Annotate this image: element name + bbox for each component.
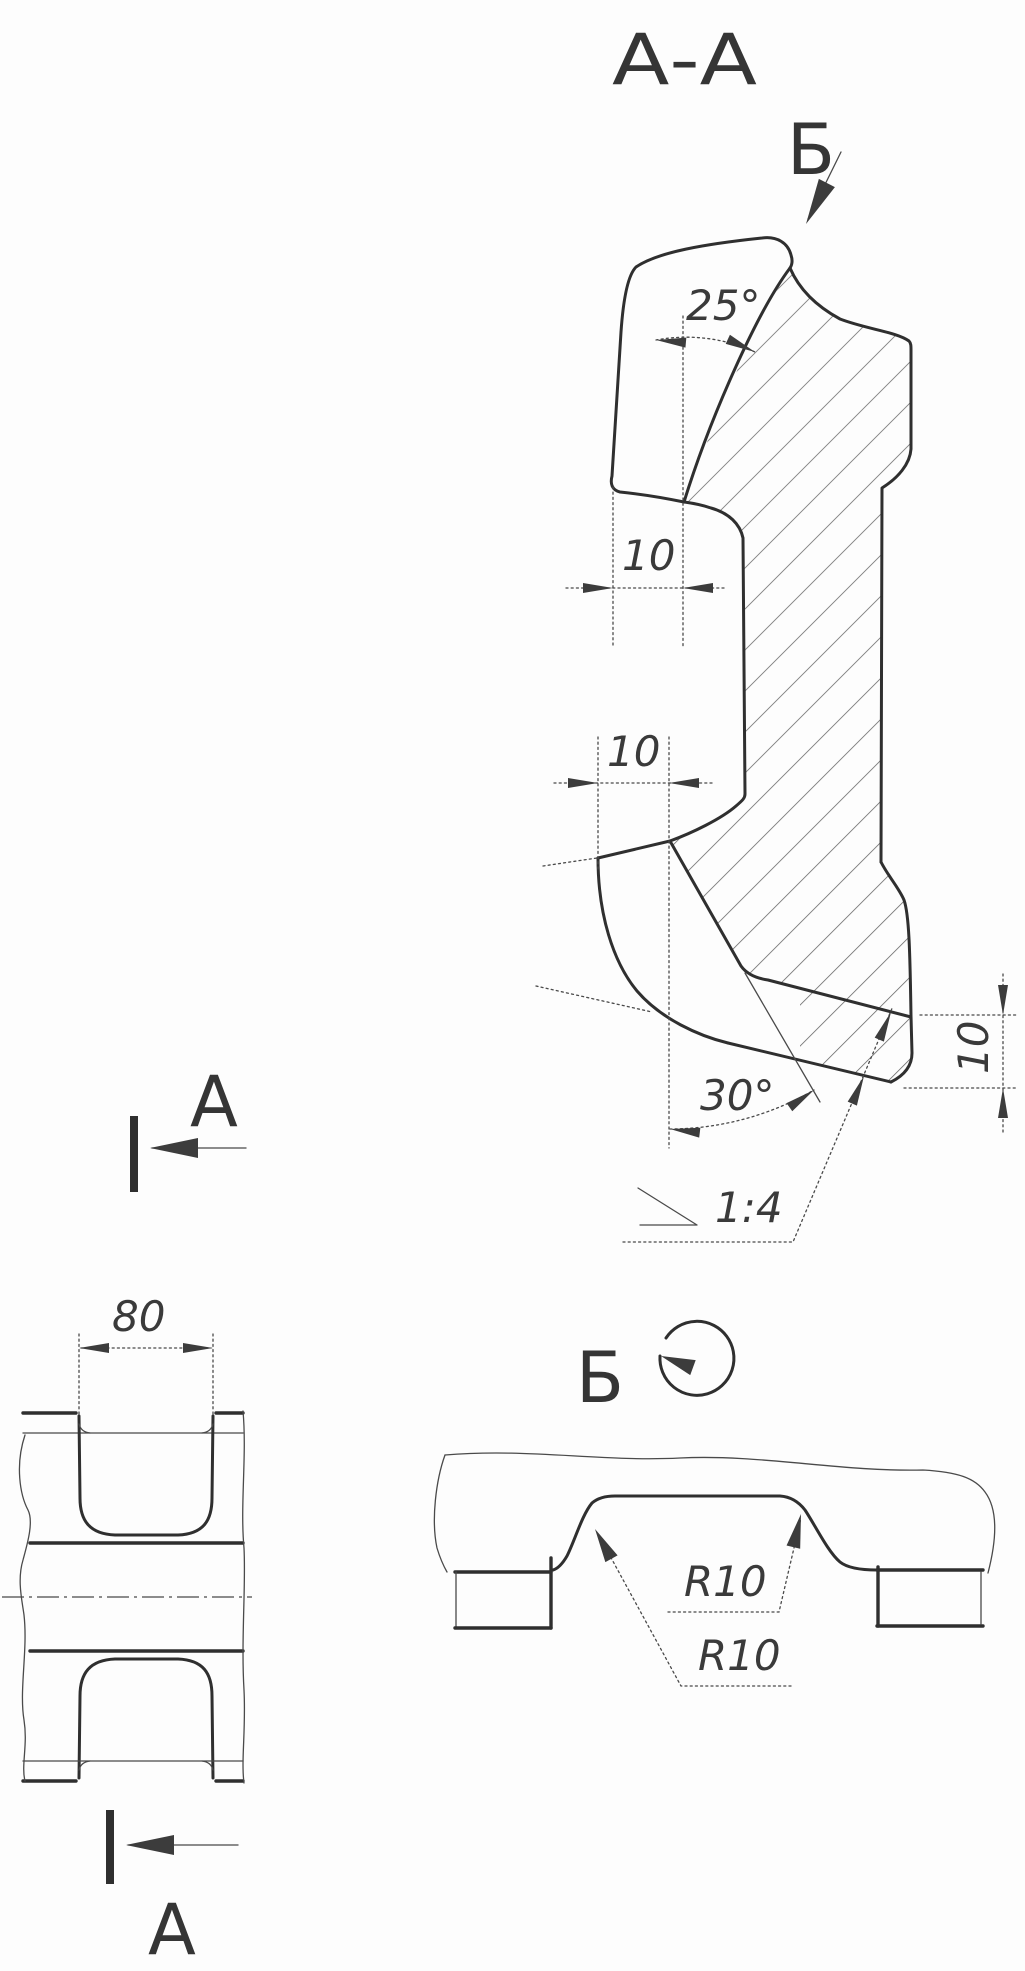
side-view: 80	[2, 1292, 252, 1783]
rotated-view-label: Б	[576, 1337, 624, 1419]
detail-view-b: Б R10 R10	[434, 1321, 994, 1686]
dim-base-slope: 1:4	[715, 1183, 783, 1232]
arrowhead	[848, 1074, 869, 1106]
groove-cup-top	[79, 1416, 213, 1535]
section-view-a-a: А-А Б 25° 10 10 30° 1:4 10	[536, 19, 1016, 1242]
dim-web-width: 10	[607, 727, 660, 776]
arrowhead	[669, 778, 699, 788]
groove-mouth-fillets-bottom	[79, 1761, 213, 1770]
break-edge-right	[243, 1411, 245, 1783]
arrowhead	[583, 583, 613, 593]
section-arrow-icon-bottom	[126, 1835, 174, 1855]
slope-leader-line	[543, 858, 597, 866]
dim-groove-width: 80	[112, 1292, 165, 1341]
rotated-symbol-arrow-icon	[658, 1348, 695, 1375]
arrowhead	[589, 1526, 618, 1563]
arrowhead	[998, 1088, 1008, 1118]
section-marker-label-top: А	[190, 1061, 238, 1143]
slope-symbol-icon	[638, 1188, 697, 1225]
view-b-arrow-label: Б	[787, 109, 835, 191]
technical-drawing-page: А-А Б 25° 10 10 30° 1:4 10 А А 80	[0, 0, 1025, 1971]
section-plane-markers: А А	[110, 1061, 246, 1971]
web-left-edge	[670, 502, 745, 841]
base-top-left-slope	[598, 841, 670, 858]
arrowhead	[683, 583, 713, 593]
technical-drawing: А-А Б 25° 10 10 30° 1:4 10 А А 80	[0, 0, 1025, 1971]
dim-base-edge-thickness: 10	[949, 1021, 998, 1074]
arrowhead	[183, 1343, 213, 1353]
break-edge-b-left	[434, 1455, 447, 1572]
dim-head-width: 10	[622, 531, 675, 580]
groove-cup-bottom	[79, 1659, 213, 1778]
surface-break-line	[445, 1453, 995, 1573]
dim-radius-left: R10	[698, 1631, 781, 1680]
dim-head-cut-angle: 25°	[686, 281, 760, 330]
arrowhead	[79, 1343, 109, 1353]
section-marker-label-bottom: А	[148, 1889, 196, 1971]
arrowhead	[787, 1512, 808, 1548]
groove-mouth-fillets-top	[79, 1424, 213, 1433]
arrowhead	[998, 985, 1008, 1015]
dim-base-cut-angle: 30°	[700, 1071, 774, 1120]
arrowhead	[568, 778, 598, 788]
break-edge-left	[19, 1435, 30, 1781]
section-title: А-А	[612, 19, 757, 101]
dim-radius-right: R10	[684, 1557, 767, 1606]
arrowhead	[669, 1124, 700, 1138]
